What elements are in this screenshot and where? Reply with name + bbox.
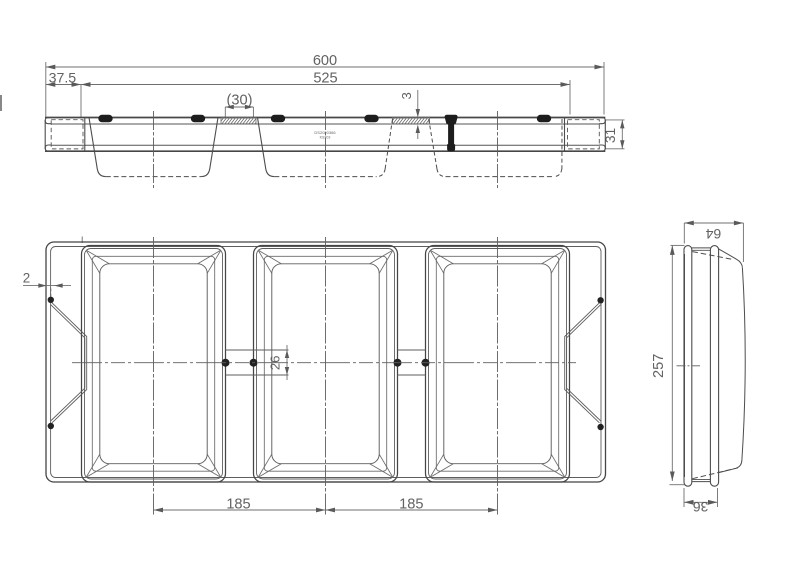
svg-text:600: 600 (313, 53, 337, 69)
svg-text:36: 36 (693, 499, 709, 515)
svg-text:KS203: KS203 (320, 136, 331, 140)
svg-text:185: 185 (399, 497, 423, 513)
svg-text:3: 3 (399, 92, 414, 99)
svg-text:185: 185 (226, 497, 250, 513)
svg-text:257: 257 (651, 354, 667, 378)
svg-text:525: 525 (313, 71, 337, 87)
svg-text:64: 64 (706, 226, 722, 242)
svg-text:2: 2 (23, 270, 30, 285)
svg-text:DS2020366: DS2020366 (314, 130, 336, 135)
svg-text:37.5: 37.5 (49, 71, 77, 87)
svg-text:(30): (30) (227, 93, 253, 109)
